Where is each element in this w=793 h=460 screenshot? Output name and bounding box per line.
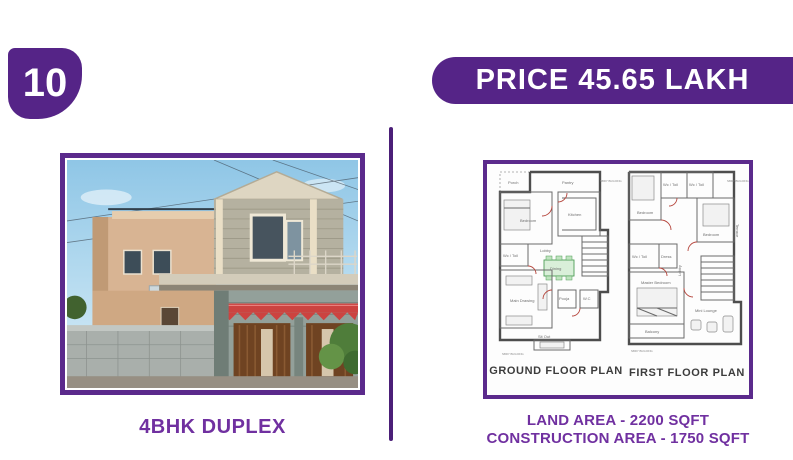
item-number-text: 10 bbox=[23, 61, 68, 106]
ground-floor-plan: Porch Bedroom Wc / Toil Pantry Kitchen L… bbox=[489, 172, 623, 377]
house-photo bbox=[67, 160, 358, 388]
svg-text:Terrace: Terrace bbox=[735, 224, 740, 238]
item-number-badge: 10 bbox=[8, 48, 82, 119]
svg-text:Dress: Dress bbox=[661, 254, 671, 259]
svg-text:Wc / Toil: Wc / Toil bbox=[632, 254, 647, 259]
photo-caption: 4BHK DUPLEX bbox=[60, 416, 365, 439]
svg-text:W.C: W.C bbox=[583, 296, 591, 301]
svg-text:Pooja: Pooja bbox=[559, 296, 570, 301]
ground-plan-title: GROUND FLOOR PLAN bbox=[489, 365, 623, 377]
svg-text:Sit Out: Sit Out bbox=[538, 334, 551, 339]
svg-text:Main Drawing: Main Drawing bbox=[510, 298, 534, 303]
price-banner-text: PRICE 45.65 LAKH bbox=[476, 64, 750, 97]
svg-text:Bedroom: Bedroom bbox=[703, 232, 720, 237]
svg-text:NBRY BUILDING: NBRY BUILDING bbox=[502, 352, 524, 356]
area-info: LAND AREA - 2200 SQFT CONSTRUCTION AREA … bbox=[470, 412, 766, 448]
svg-text:Master Bedroom: Master Bedroom bbox=[641, 280, 671, 285]
first-plan-title: FIRST FLOOR PLAN bbox=[629, 367, 745, 379]
svg-text:Balcony: Balcony bbox=[645, 329, 659, 334]
svg-text:Pantry: Pantry bbox=[562, 180, 574, 185]
house-photo-frame bbox=[60, 153, 365, 395]
svg-text:Porch: Porch bbox=[508, 180, 518, 185]
price-banner: PRICE 45.65 LAKH bbox=[432, 57, 793, 104]
construction-area-text: CONSTRUCTION AREA - 1750 SQFT bbox=[470, 430, 766, 448]
page-canvas: 10 PRICE 45.65 LAKH bbox=[0, 0, 793, 460]
svg-text:Bedroom: Bedroom bbox=[637, 210, 654, 215]
svg-text:NBRY BUILDING: NBRY BUILDING bbox=[631, 349, 653, 353]
svg-text:Wc / Toil: Wc / Toil bbox=[689, 182, 704, 187]
floorplan-frame: Porch Bedroom Wc / Toil Pantry Kitchen L… bbox=[483, 160, 753, 399]
vertical-divider bbox=[389, 127, 393, 441]
svg-text:NBRY BUILDING: NBRY BUILDING bbox=[600, 179, 622, 183]
svg-text:Lobby: Lobby bbox=[540, 248, 551, 253]
svg-text:Mini Lounge: Mini Lounge bbox=[695, 308, 718, 313]
first-floor-plan: Wc / Toil Wc / Toil Bedroom Bedroom Terr… bbox=[629, 172, 749, 379]
svg-text:Wc / Toil: Wc / Toil bbox=[503, 253, 518, 258]
land-area-text: LAND AREA - 2200 SQFT bbox=[470, 412, 766, 430]
svg-text:NBRY BUILDING: NBRY BUILDING bbox=[727, 179, 749, 183]
floorplan-drawing: Porch Bedroom Wc / Toil Pantry Kitchen L… bbox=[487, 164, 749, 395]
svg-text:Lobby: Lobby bbox=[677, 265, 682, 276]
svg-text:Wc / Toil: Wc / Toil bbox=[663, 182, 678, 187]
house-ground-floor bbox=[67, 291, 358, 388]
svg-text:Bedroom: Bedroom bbox=[520, 218, 537, 223]
svg-text:Kitchen: Kitchen bbox=[568, 212, 581, 217]
